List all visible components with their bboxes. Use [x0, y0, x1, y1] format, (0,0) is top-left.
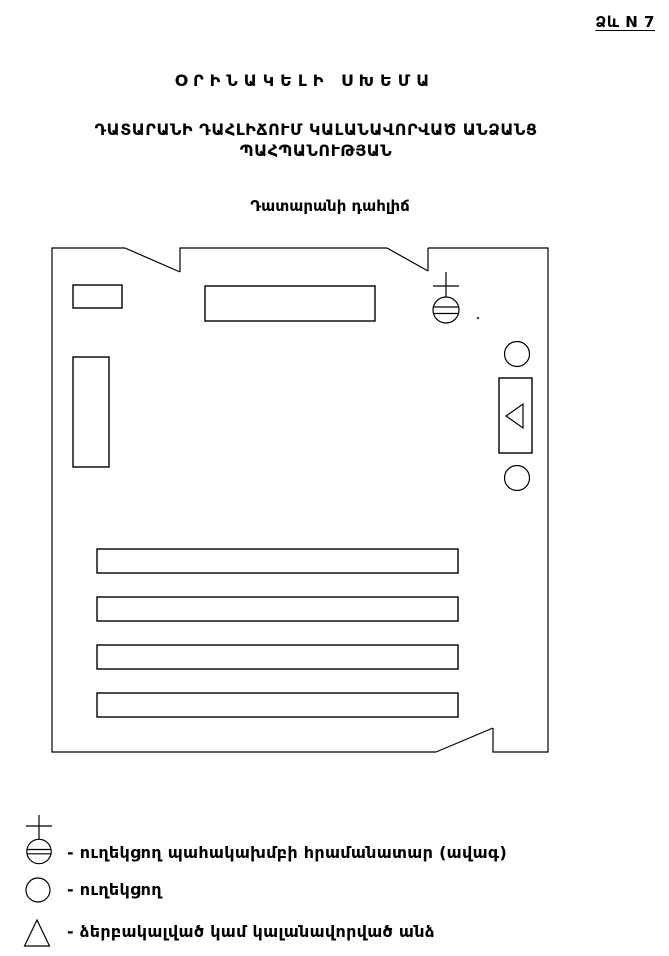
witness-stand [73, 357, 109, 467]
defendant-dock [499, 378, 532, 453]
escort-circle-icon [25, 877, 51, 903]
room-wall-top-middle [180, 248, 387, 272]
spectator-bench-4 [97, 693, 458, 717]
escort-circle-icon-top [505, 342, 530, 367]
detainee-triangle-icon [506, 404, 523, 428]
spectator-bench-2 [97, 597, 458, 621]
legend-label-detainee: - ձերբակալված կամ կալանավորված անձ [67, 922, 435, 942]
judges-table [205, 286, 375, 321]
spectator-bench-3 [97, 645, 458, 669]
room-wall-left-bottom [52, 248, 436, 752]
room-wall-right-top [428, 248, 548, 752]
form-page: Ձև N 7 ՕՐԻՆԱԿԵԼԻ ՍԽԵՄԱ ԴԱՏԱՐԱՆԻ ԴԱՀԼԻՃՈՒ… [0, 0, 669, 956]
spectator-bench-1 [97, 549, 458, 573]
door-leaf-bottom [436, 728, 493, 752]
commander-symbol-icon [24, 813, 54, 865]
legend-label-escort: - ուղեկցող [67, 880, 162, 900]
commander-symbol-icon [433, 272, 459, 323]
legend-label-commander: - ուղեկցող պահակախմբի հրամանատար (ավագ) [67, 843, 507, 863]
escort-circle-icon-bottom [505, 466, 530, 491]
secretary-desk [73, 285, 122, 308]
stray-mark-dot [477, 317, 479, 319]
door-leaf-top-left [125, 248, 180, 272]
legend: - ուղեկցող պահակախմբի հրամանատար (ավագ) … [0, 810, 669, 956]
door-leaf-top-right [387, 248, 428, 271]
detainee-triangle-icon [23, 918, 51, 948]
